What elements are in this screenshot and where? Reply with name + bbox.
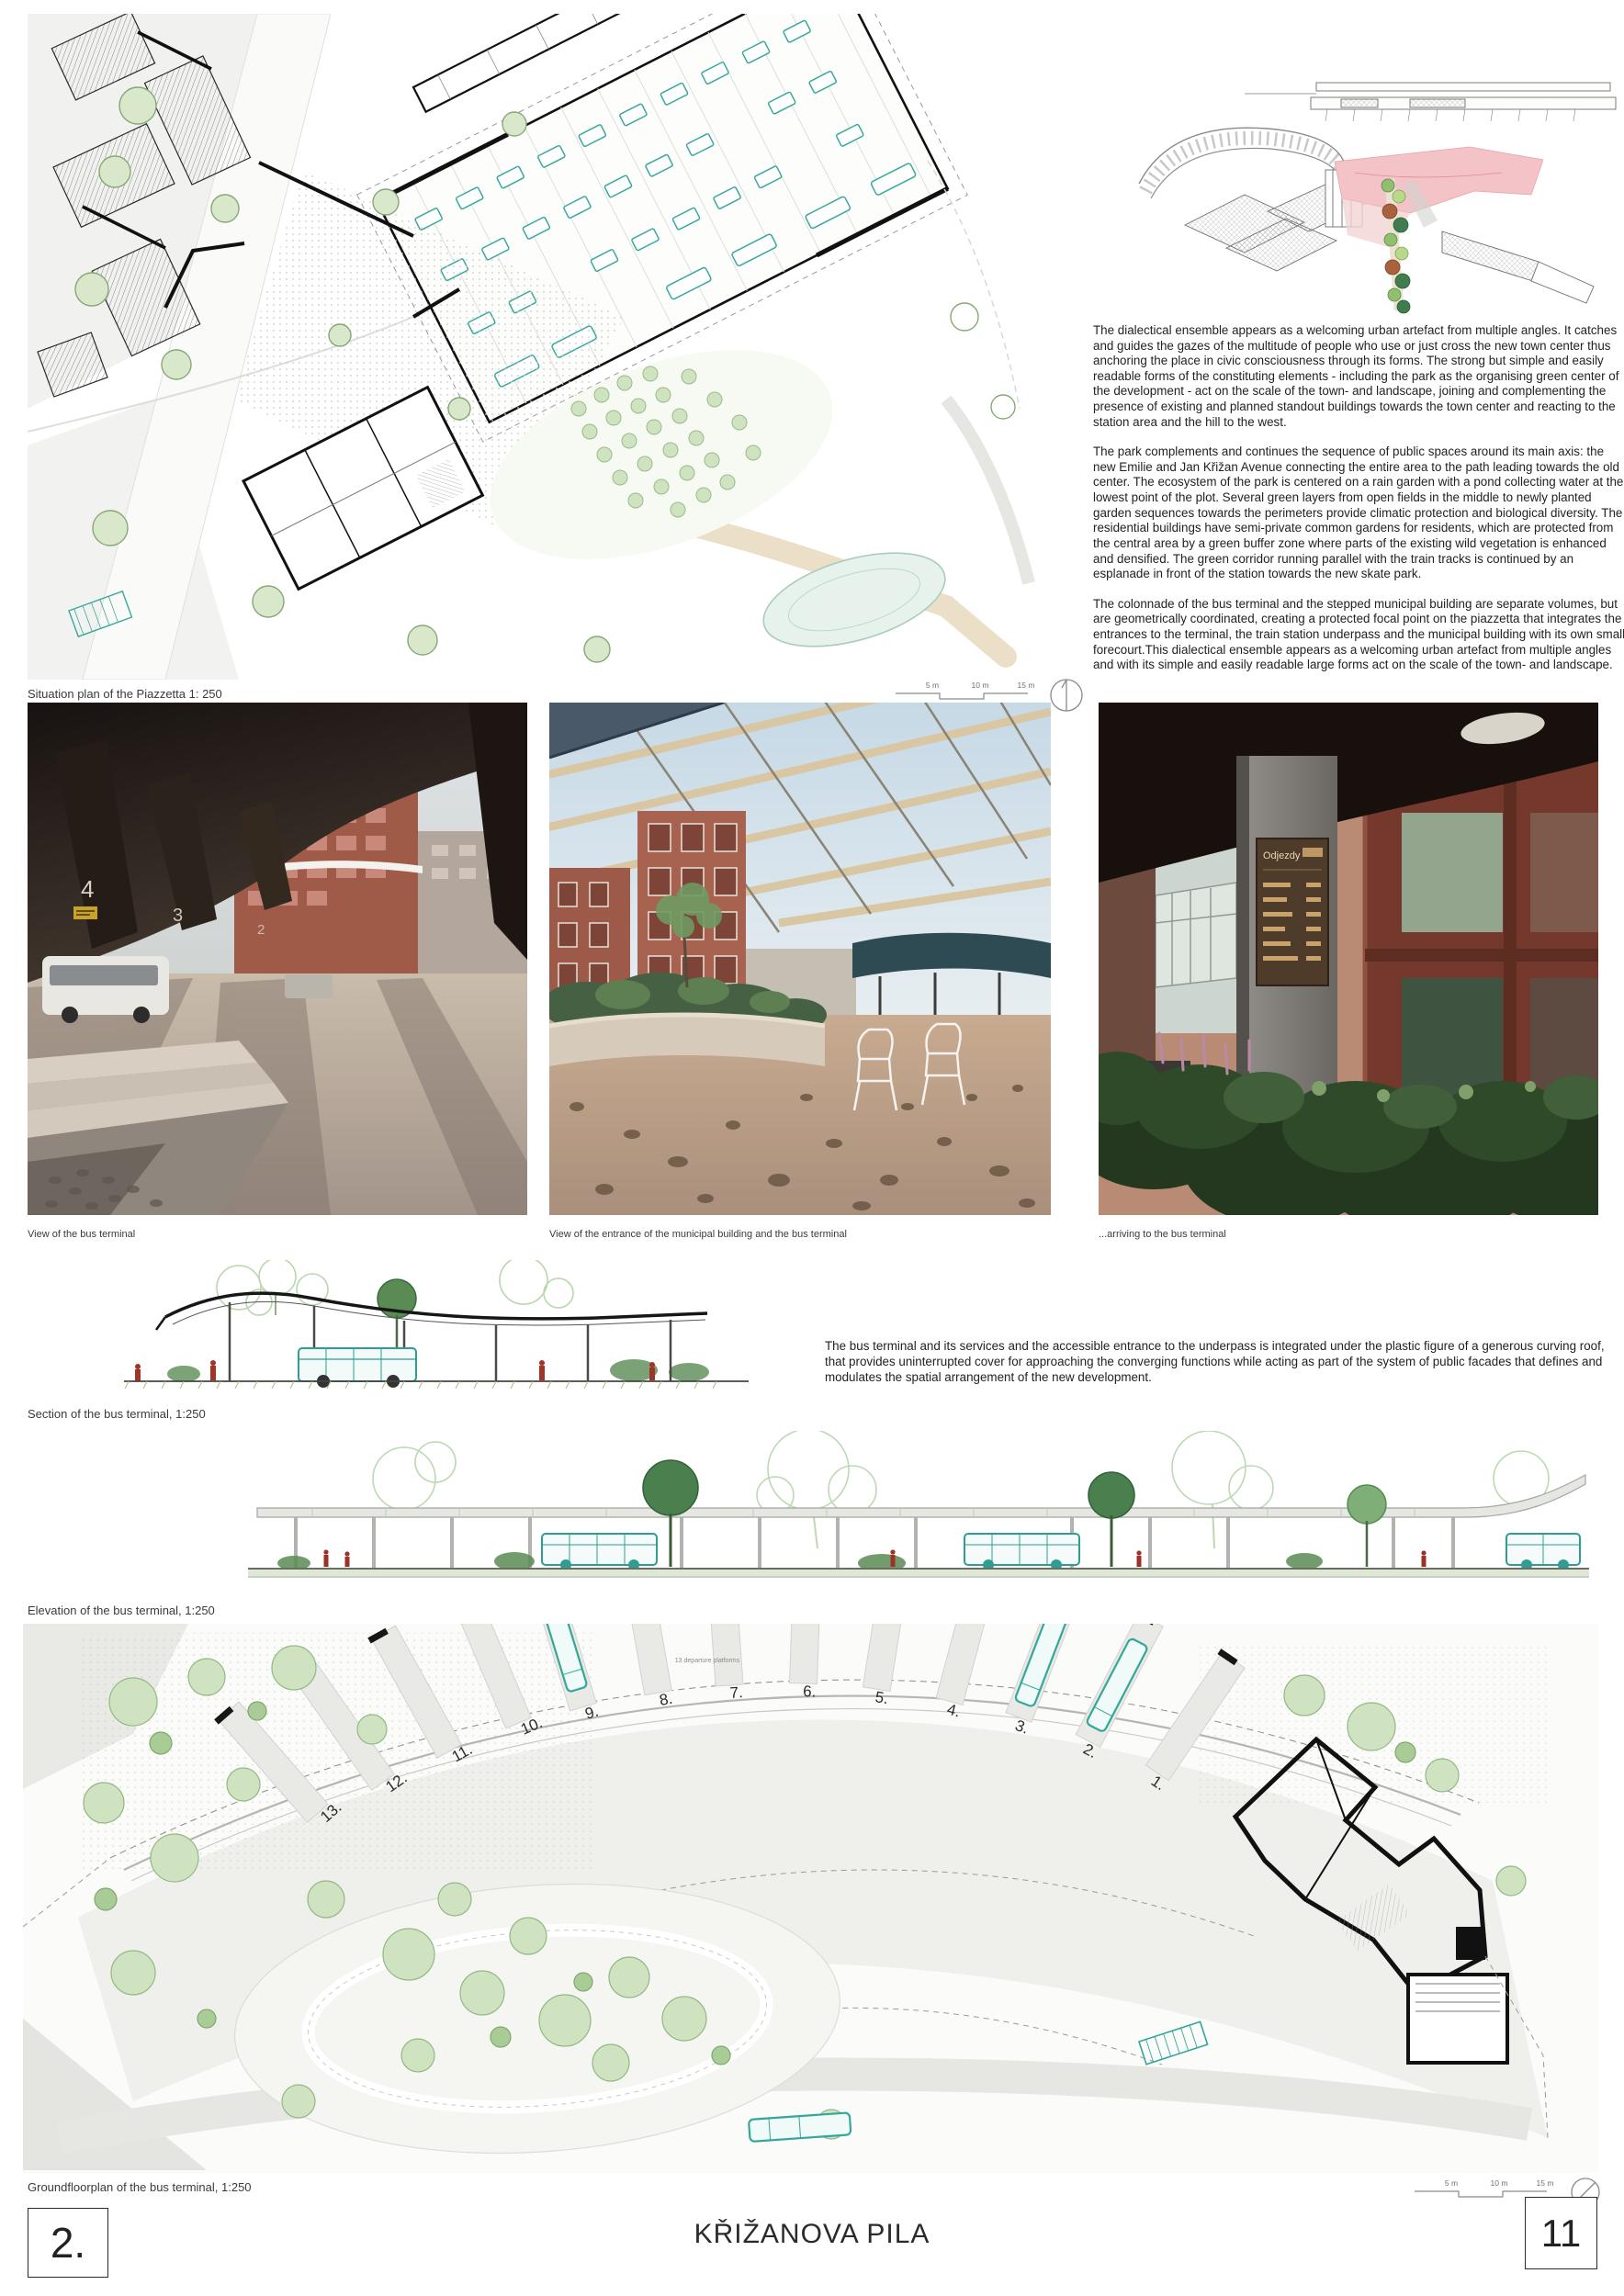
photo3-glasshouse: [1156, 883, 1236, 987]
elevation-drawing: [239, 1431, 1598, 1592]
svg-text:2: 2: [257, 922, 265, 938]
photo3-caption: ...arriving to the bus terminal: [1099, 1229, 1226, 1240]
axon-train-platform: [1245, 83, 1616, 121]
photo1-caption: View of the bus terminal: [28, 1229, 135, 1240]
gplan-platforms-label: 13 departure platforms: [675, 1658, 740, 1664]
svg-text:6.: 6.: [803, 1683, 817, 1700]
presentation-board: Situation plan of the Piazzetta 1: 250 5…: [0, 0, 1624, 2296]
situation-plan-caption: Situation plan of the Piazzetta 1: 250: [28, 687, 222, 701]
project-description: The dialectical ensemble appears as a we…: [1093, 323, 1624, 688]
section-caption: Section of the bus terminal, 1:250: [28, 1407, 206, 1421]
section-ground-hatch: [125, 1381, 716, 1389]
groundfloor-plan-drawing: 1. 2. 3. 4. 5. 6. 7. 8. 9. 10. 11. 12. 1…: [23, 1624, 1598, 2173]
photo3-departures-sign: Odjezdy: [1257, 838, 1328, 985]
section-trees: [167, 1260, 709, 1382]
photo-bus-terminal: 4 3 2: [28, 703, 527, 1215]
svg-text:10 m: 10 m: [1491, 2178, 1508, 2188]
axon-canopy-fan: [1139, 128, 1344, 198]
axonometric-diagram: [1107, 73, 1621, 317]
elevation-canopy: [257, 1475, 1585, 1517]
photo2-caption: View of the entrance of the municipal bu…: [549, 1229, 847, 1240]
photo-arriving-terminal: Odjezdy: [1099, 703, 1598, 1215]
section-roof: [156, 1293, 707, 1330]
elevation-caption: Elevation of the bus terminal, 1:250: [28, 1604, 215, 1617]
svg-text:15 m: 15 m: [1537, 2178, 1554, 2188]
photo-municipal-entrance: [549, 703, 1051, 1215]
svg-text:10 m: 10 m: [972, 681, 989, 690]
svg-text:7.: 7.: [729, 1683, 743, 1702]
svg-text:Odjezdy: Odjezdy: [1263, 850, 1301, 861]
page-number: 11: [1541, 2212, 1582, 2256]
svg-text:5 m: 5 m: [926, 681, 939, 690]
svg-text:5 m: 5 m: [1445, 2178, 1458, 2188]
scale-bar-line: [896, 693, 1028, 699]
description-paragraph-2: The park complements and continues the s…: [1093, 445, 1624, 581]
axon-ramp: [1442, 231, 1594, 303]
north-arrow-icon: [1051, 680, 1082, 711]
section-columns: [230, 1302, 671, 1381]
description-paragraph-1: The dialectical ensemble appears as a we…: [1093, 323, 1624, 430]
elevation-ground-strip: [248, 1570, 1589, 1576]
terminal-description: The bus terminal and its services and th…: [825, 1339, 1607, 1385]
axon-pink-plaza: [1335, 147, 1543, 248]
description-paragraph-3: The colonnade of the bus terminal and th…: [1093, 597, 1624, 673]
section-drawing: [101, 1260, 772, 1398]
board-title: KŘIŽANOVA PILA: [0, 2219, 1624, 2250]
svg-text:15 m: 15 m: [1018, 681, 1035, 690]
svg-text:4: 4: [81, 875, 94, 903]
svg-text:5.: 5.: [874, 1688, 889, 1707]
gplan-station-entrance: [1408, 1975, 1507, 2063]
page-number-box: 11: [1525, 2197, 1597, 2269]
situation-plan-drawing: [28, 14, 1061, 680]
groundplan-caption: Groundfloorplan of the bus terminal, 1:2…: [28, 2180, 252, 2194]
svg-text:3: 3: [173, 906, 183, 926]
